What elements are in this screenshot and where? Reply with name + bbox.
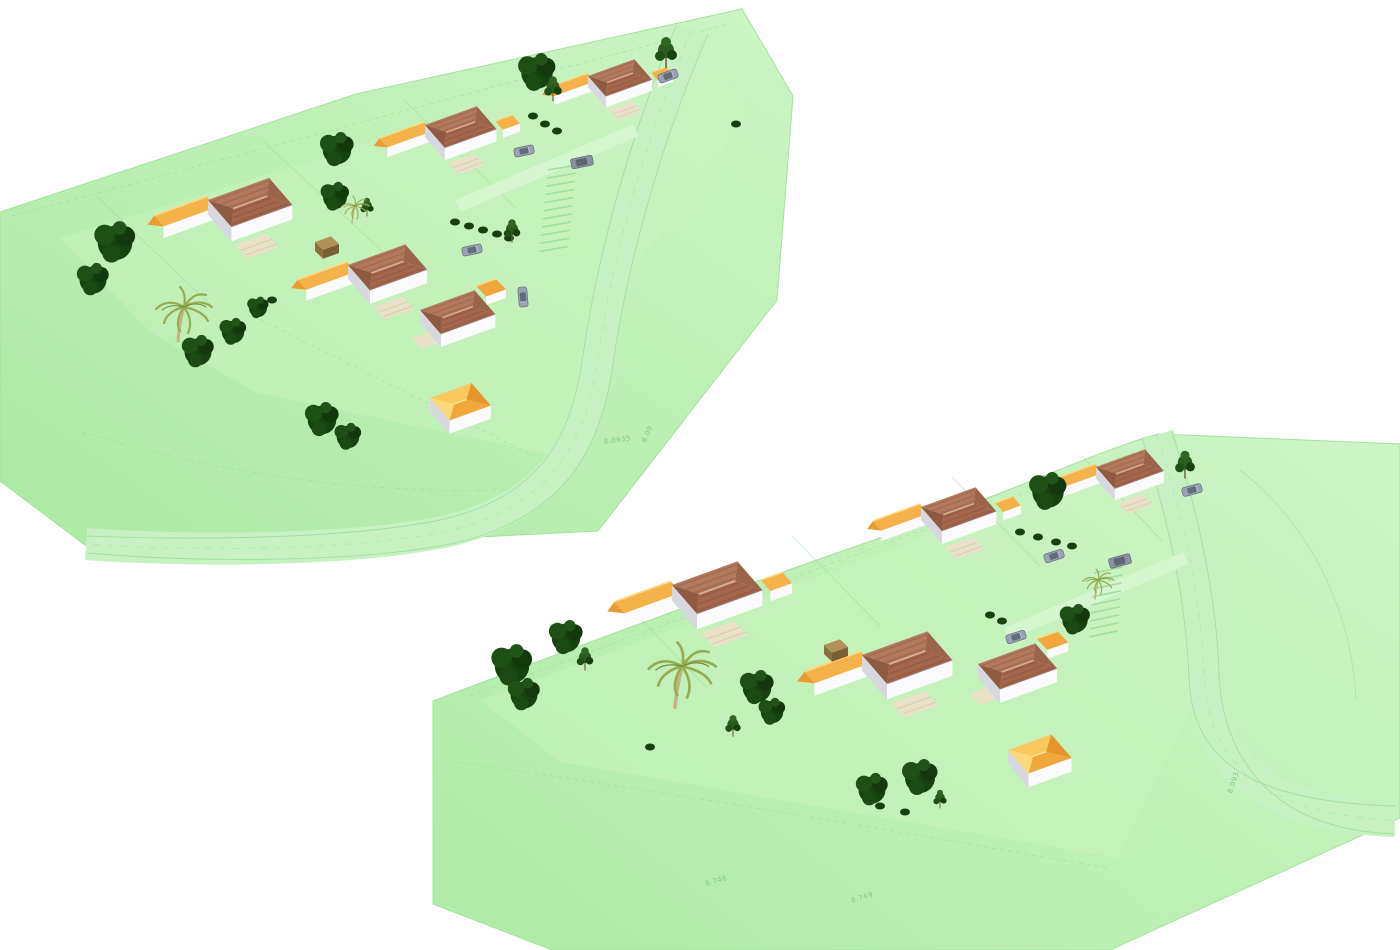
bush xyxy=(267,297,277,304)
site-rendering-page: 8.09358.098.7468.7498.093 xyxy=(0,0,1400,950)
bush xyxy=(464,223,474,230)
bush xyxy=(731,121,741,128)
bush xyxy=(985,612,995,619)
bush xyxy=(492,231,502,238)
bush xyxy=(528,113,538,120)
bush xyxy=(478,227,488,234)
bush xyxy=(645,744,655,751)
bush xyxy=(1033,534,1043,541)
bush xyxy=(1067,543,1077,550)
site-plan-3d-rendering: 8.09358.098.7468.7498.093 xyxy=(0,0,1400,950)
bush xyxy=(1051,539,1061,546)
bush xyxy=(997,618,1007,625)
bush xyxy=(900,809,910,816)
bush xyxy=(540,121,550,128)
bush xyxy=(875,803,885,810)
bush xyxy=(552,128,562,135)
bush xyxy=(450,219,460,226)
car xyxy=(518,287,529,308)
bush xyxy=(1015,529,1025,536)
site-view-northwest: 8.09358.09 xyxy=(0,9,793,559)
